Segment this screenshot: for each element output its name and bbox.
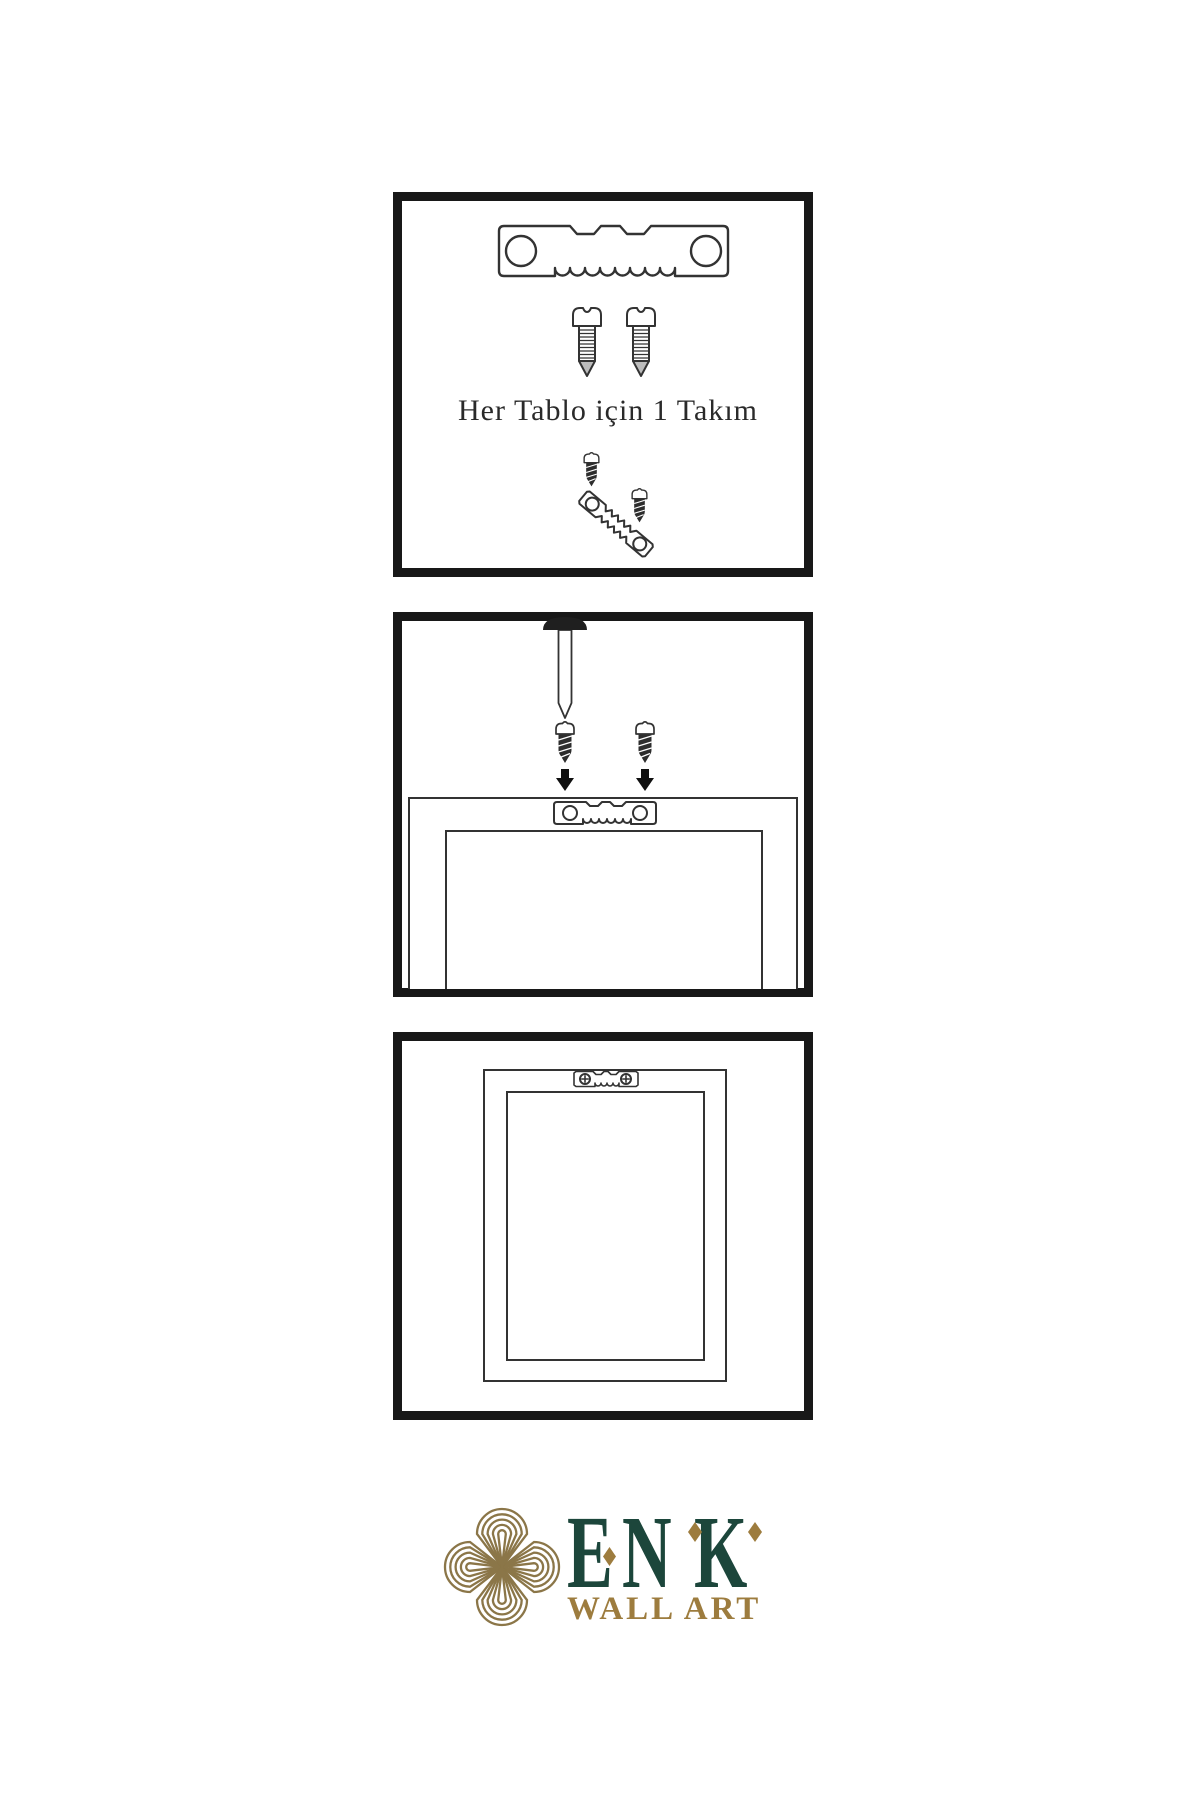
brand-knot-icon: [440, 1488, 564, 1630]
sawtooth-hanger-mounted-icon: [573, 1070, 639, 1088]
screw-left-icon: [570, 305, 604, 379]
screw-dark-left-icon: [554, 721, 576, 765]
brand-tagline: WALL ART: [567, 1591, 761, 1628]
sawtooth-hanger-icon: [497, 224, 730, 278]
diamond-icon: [748, 1522, 762, 1542]
instruction-sheet: Her Tablo için 1 Takım: [0, 0, 1200, 1800]
kit-caption: Her Tablo için 1 Takım: [398, 394, 818, 428]
picture-frame-inner: [445, 830, 763, 989]
arrow-down-icon: [556, 769, 574, 791]
sawtooth-hanger-icon: [553, 800, 657, 826]
picture-frame-inner: [506, 1091, 705, 1361]
screw-dark-right-icon: [634, 721, 656, 765]
screw-right-icon: [624, 305, 658, 379]
small-screw-icon: [629, 488, 650, 524]
arrow-down-icon: [636, 769, 654, 791]
tilted-hanger-icon: [566, 482, 666, 566]
nail-icon: [542, 615, 588, 719]
